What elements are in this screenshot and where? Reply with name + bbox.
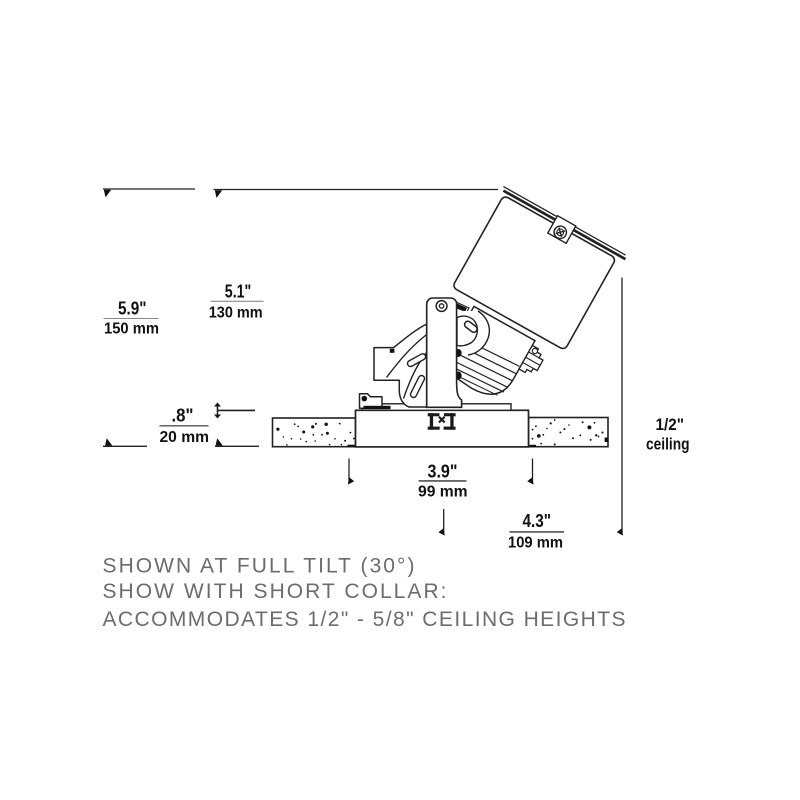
svg-text:3.9": 3.9" — [428, 462, 458, 482]
svg-text:20 mm: 20 mm — [160, 429, 210, 446]
svg-text:4.3": 4.3" — [523, 511, 552, 531]
svg-text:5.1": 5.1" — [225, 281, 252, 301]
svg-text:.8": .8" — [172, 406, 194, 426]
svg-text:99 mm: 99 mm — [418, 483, 468, 500]
svg-text:1/2": 1/2" — [656, 415, 685, 434]
svg-text:150 mm: 150 mm — [104, 321, 159, 338]
svg-text:SHOW WITH SHORT COLLAR:: SHOW WITH SHORT COLLAR: — [103, 580, 447, 603]
svg-text:ceiling: ceiling — [646, 434, 690, 453]
svg-text:5.9": 5.9" — [118, 298, 147, 318]
svg-text:130 mm: 130 mm — [209, 305, 263, 322]
svg-text:109 mm: 109 mm — [508, 534, 563, 551]
